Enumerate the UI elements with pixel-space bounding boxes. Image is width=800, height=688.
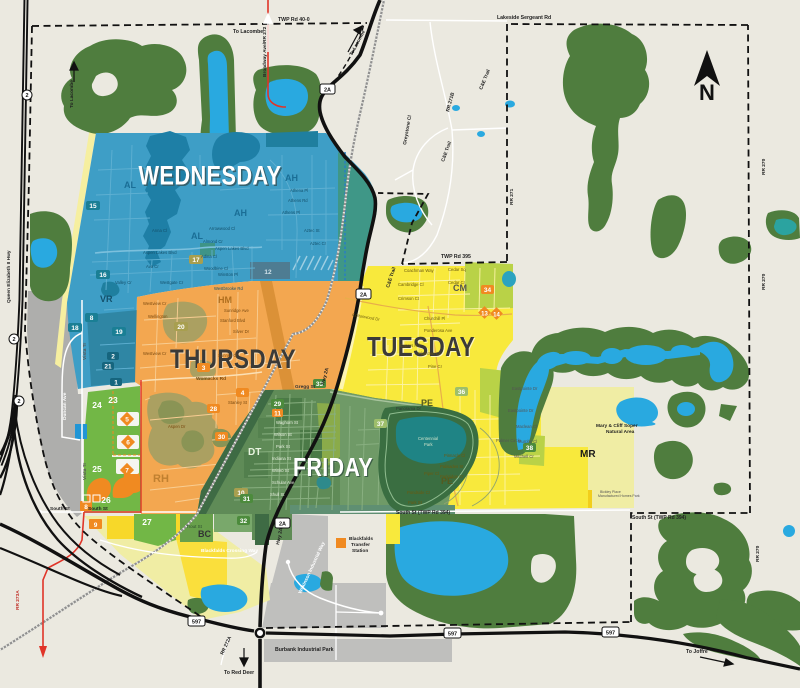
svg-text:Valley Cr: Valley Cr: [115, 280, 132, 285]
svg-text:25: 25: [92, 464, 102, 474]
svg-text:Stanford Blvd: Stanford Blvd: [220, 318, 246, 323]
svg-text:RR 270: RR 270: [761, 158, 767, 175]
svg-text:12: 12: [264, 269, 272, 276]
svg-text:Adina Cl: Adina Cl: [201, 254, 217, 259]
svg-text:Manufactured Homes Park: Manufactured Homes Park: [598, 494, 640, 498]
svg-text:Cedar Sq: Cedar Sq: [448, 267, 466, 272]
svg-text:Vista Tr: Vista Tr: [82, 343, 88, 360]
svg-text:30: 30: [218, 434, 226, 441]
svg-text:Shull St: Shull St: [270, 492, 285, 497]
svg-text:28: 28: [210, 406, 218, 413]
svg-text:Arrowwood Cl: Arrowwood Cl: [209, 226, 235, 231]
svg-text:Womacks Rd: Womacks Rd: [196, 376, 226, 382]
svg-text:Maclean Cl: Maclean Cl: [516, 424, 537, 429]
svg-text:Eastpointe Dr: Eastpointe Dr: [512, 386, 538, 391]
svg-text:11: 11: [274, 411, 281, 418]
svg-text:16: 16: [99, 272, 107, 279]
svg-text:Cyprus Rd: Cyprus Rd: [400, 343, 420, 348]
svg-text:RR 270: RR 270: [761, 273, 767, 290]
svg-text:597: 597: [192, 620, 201, 626]
svg-text:VR: VR: [100, 294, 113, 304]
svg-text:2A: 2A: [360, 293, 367, 299]
svg-text:Pondside Cr: Pondside Cr: [407, 490, 431, 495]
svg-text:36: 36: [458, 389, 466, 396]
svg-text:26: 26: [101, 495, 111, 505]
svg-text:RH: RH: [153, 473, 169, 485]
svg-text:South St: South St: [88, 506, 108, 512]
svg-text:AL: AL: [191, 231, 203, 241]
svg-text:597: 597: [448, 632, 457, 638]
svg-text:27: 27: [142, 517, 152, 527]
svg-text:Aspen Lakes Blvd: Aspen Lakes Blvd: [215, 246, 249, 251]
svg-text:24: 24: [92, 400, 102, 410]
svg-text:37: 37: [377, 421, 385, 428]
svg-text:Aztec Cr: Aztec Cr: [310, 241, 327, 246]
svg-text:34: 34: [484, 287, 492, 294]
svg-text:31: 31: [243, 496, 251, 503]
svg-text:5: 5: [125, 417, 129, 424]
svg-text:18: 18: [71, 325, 79, 332]
svg-text:Mary & Cliff Soper: Mary & Cliff Soper: [596, 423, 638, 429]
svg-text:Westbrooke Rd: Westbrooke Rd: [214, 286, 243, 291]
svg-text:Waghorn St: Waghorn St: [276, 420, 299, 425]
svg-text:TWP Rd 40-0: TWP Rd 40-0: [278, 17, 310, 23]
svg-text:To Lacombe: To Lacombe: [233, 29, 263, 35]
svg-text:2: 2: [25, 93, 28, 99]
svg-text:Cedar Cr: Cedar Cr: [448, 280, 466, 285]
svg-text:Panorama Dr: Panorama Dr: [396, 406, 422, 411]
svg-text:Park St: Park St: [276, 444, 291, 449]
svg-text:Sunrise Cl: Sunrise Cl: [218, 353, 237, 358]
svg-text:FRIDAY: FRIDAY: [293, 452, 373, 482]
svg-text:Stanley St: Stanley St: [228, 400, 248, 405]
svg-text:Blackfalds Crossing Way: Blackfalds Crossing Way: [201, 548, 258, 554]
svg-text:2: 2: [111, 354, 115, 361]
svg-text:N: N: [699, 80, 715, 105]
svg-text:Broadway Ave/RR 272: Broadway Ave/RR 272: [262, 26, 268, 77]
svg-text:Athens Pl: Athens Pl: [282, 210, 300, 215]
svg-text:29: 29: [274, 401, 282, 408]
svg-text:Wellington: Wellington: [148, 314, 168, 319]
svg-text:13: 13: [481, 312, 488, 318]
svg-text:Station: Station: [352, 548, 368, 554]
svg-text:1: 1: [114, 380, 118, 387]
svg-text:7: 7: [125, 468, 129, 475]
svg-text:South St (TWP Rd 394): South St (TWP Rd 394): [632, 515, 686, 521]
svg-text:Coachman Way: Coachman Way: [404, 268, 435, 273]
svg-text:Wilson St: Wilson St: [274, 432, 293, 437]
svg-text:Aztec St: Aztec St: [304, 228, 320, 233]
svg-text:TWP Rd 395: TWP Rd 395: [441, 254, 471, 260]
svg-text:TUESDAY: TUESDAY: [367, 331, 475, 362]
svg-text:WEDNESDAY: WEDNESDAY: [139, 161, 282, 191]
svg-text:Blackfalds: Blackfalds: [349, 536, 373, 542]
svg-text:South St: South St: [50, 506, 70, 512]
svg-text:Westview Cr: Westview Cr: [143, 301, 167, 306]
svg-text:6: 6: [126, 440, 130, 447]
svg-text:4: 4: [241, 390, 245, 397]
svg-text:Gregg St: Gregg St: [295, 384, 316, 390]
svg-text:Schular Ave: Schular Ave: [272, 480, 295, 485]
svg-text:2: 2: [12, 337, 15, 343]
svg-text:HM: HM: [218, 295, 232, 305]
svg-text:Almond Cr: Almond Cr: [203, 239, 223, 244]
svg-text:Queen Elizabeth II Hwy: Queen Elizabeth II Hwy: [6, 250, 12, 303]
svg-text:Lakeside Sergeant Rd: Lakeside Sergeant Rd: [497, 15, 551, 21]
svg-text:THURSDAY: THURSDAY: [170, 344, 296, 374]
svg-text:AL: AL: [124, 180, 136, 190]
svg-text:Crimson Ct: Crimson Ct: [398, 296, 420, 301]
svg-text:Silver Dr: Silver Dr: [233, 329, 250, 334]
svg-text:38: 38: [526, 445, 534, 452]
svg-text:Mitchell Cr: Mitchell Cr: [514, 454, 534, 459]
svg-text:RR 270: RR 270: [755, 545, 761, 562]
svg-text:PE: PE: [421, 398, 433, 408]
svg-text:MR: MR: [580, 449, 596, 460]
svg-text:AH: AH: [285, 173, 298, 183]
svg-text:Anna Cl: Anna Cl: [152, 228, 167, 233]
svg-text:Athena Pl: Athena Pl: [290, 188, 308, 193]
svg-text:9: 9: [94, 522, 98, 529]
svg-text:Ava Cr: Ava Cr: [146, 264, 159, 269]
svg-text:19: 19: [115, 329, 123, 336]
svg-text:2A: 2A: [279, 522, 286, 528]
svg-text:Eastpointe Dr: Eastpointe Dr: [508, 408, 534, 413]
svg-text:Sunridge Ave: Sunridge Ave: [224, 308, 250, 313]
svg-text:Burbank Industrial Park: Burbank Industrial Park: [275, 647, 334, 653]
svg-text:Centennial: Centennial: [418, 436, 438, 441]
svg-text:Ponderosa Ave: Ponderosa Ave: [424, 328, 453, 333]
svg-text:Park: Park: [424, 442, 434, 447]
svg-text:Indiana St: Indiana St: [272, 456, 292, 461]
svg-text:RR 271: RR 271: [509, 188, 515, 205]
svg-text:Westgate Cr: Westgate Cr: [160, 280, 184, 285]
svg-text:BC: BC: [198, 529, 211, 539]
svg-text:Pinnacle Cl: Pinnacle Cl: [444, 453, 465, 458]
svg-text:Palisades St: Palisades St: [440, 464, 464, 469]
svg-text:Trout St: Trout St: [186, 524, 203, 529]
svg-text:32: 32: [240, 518, 248, 525]
svg-text:17: 17: [192, 257, 200, 264]
svg-text:AH: AH: [234, 208, 247, 218]
svg-text:Pine Cr: Pine Cr: [428, 364, 443, 369]
svg-text:Aspen Lakes Blvd: Aspen Lakes Blvd: [143, 250, 177, 255]
svg-text:Aspen Dr: Aspen Dr: [168, 424, 186, 429]
svg-text:8: 8: [90, 315, 94, 322]
svg-text:Park St: Park St: [408, 500, 423, 505]
svg-text:3: 3: [202, 365, 206, 372]
svg-text:To Red Deer: To Red Deer: [224, 670, 254, 676]
svg-text:Westview Cr: Westview Cr: [143, 351, 167, 356]
svg-text:Transfer: Transfer: [351, 542, 370, 548]
svg-text:Parkridge Cr: Parkridge Cr: [440, 474, 464, 479]
svg-text:14: 14: [493, 313, 500, 319]
svg-text:2: 2: [17, 399, 20, 405]
svg-text:597: 597: [606, 631, 615, 637]
svg-text:DT: DT: [248, 447, 261, 458]
svg-text:23: 23: [108, 395, 118, 405]
svg-text:Athens Rd: Athens Rd: [288, 198, 308, 203]
svg-text:Natural Area: Natural Area: [606, 429, 635, 435]
svg-text:To Lacombe: To Lacombe: [69, 80, 75, 108]
svg-text:Duncan Ave: Duncan Ave: [62, 392, 68, 420]
svg-text:Plumtree Cr: Plumtree Cr: [418, 351, 441, 356]
svg-text:To Joffre: To Joffre: [686, 649, 708, 655]
svg-text:Winko St: Winko St: [272, 468, 290, 473]
svg-text:Winston Pl: Winston Pl: [218, 272, 238, 277]
svg-text:20: 20: [177, 324, 185, 331]
svg-text:Palmer Circle: Palmer Circle: [496, 438, 522, 443]
svg-text:South St (TWP Rd 394): South St (TWP Rd 394): [396, 510, 450, 516]
svg-text:Cambridge Cl: Cambridge Cl: [398, 282, 424, 287]
svg-text:Churchill Pl: Churchill Pl: [424, 316, 445, 321]
svg-text:2A: 2A: [324, 88, 331, 94]
svg-text:RR 273A: RR 273A: [15, 590, 21, 610]
svg-text:Woodbine Cl: Woodbine Cl: [204, 266, 228, 271]
svg-text:21: 21: [104, 364, 112, 371]
svg-text:Piper Cl: Piper Cl: [424, 471, 439, 476]
svg-text:15: 15: [89, 203, 97, 210]
svg-text:Vista Tr: Vista Tr: [82, 463, 88, 480]
